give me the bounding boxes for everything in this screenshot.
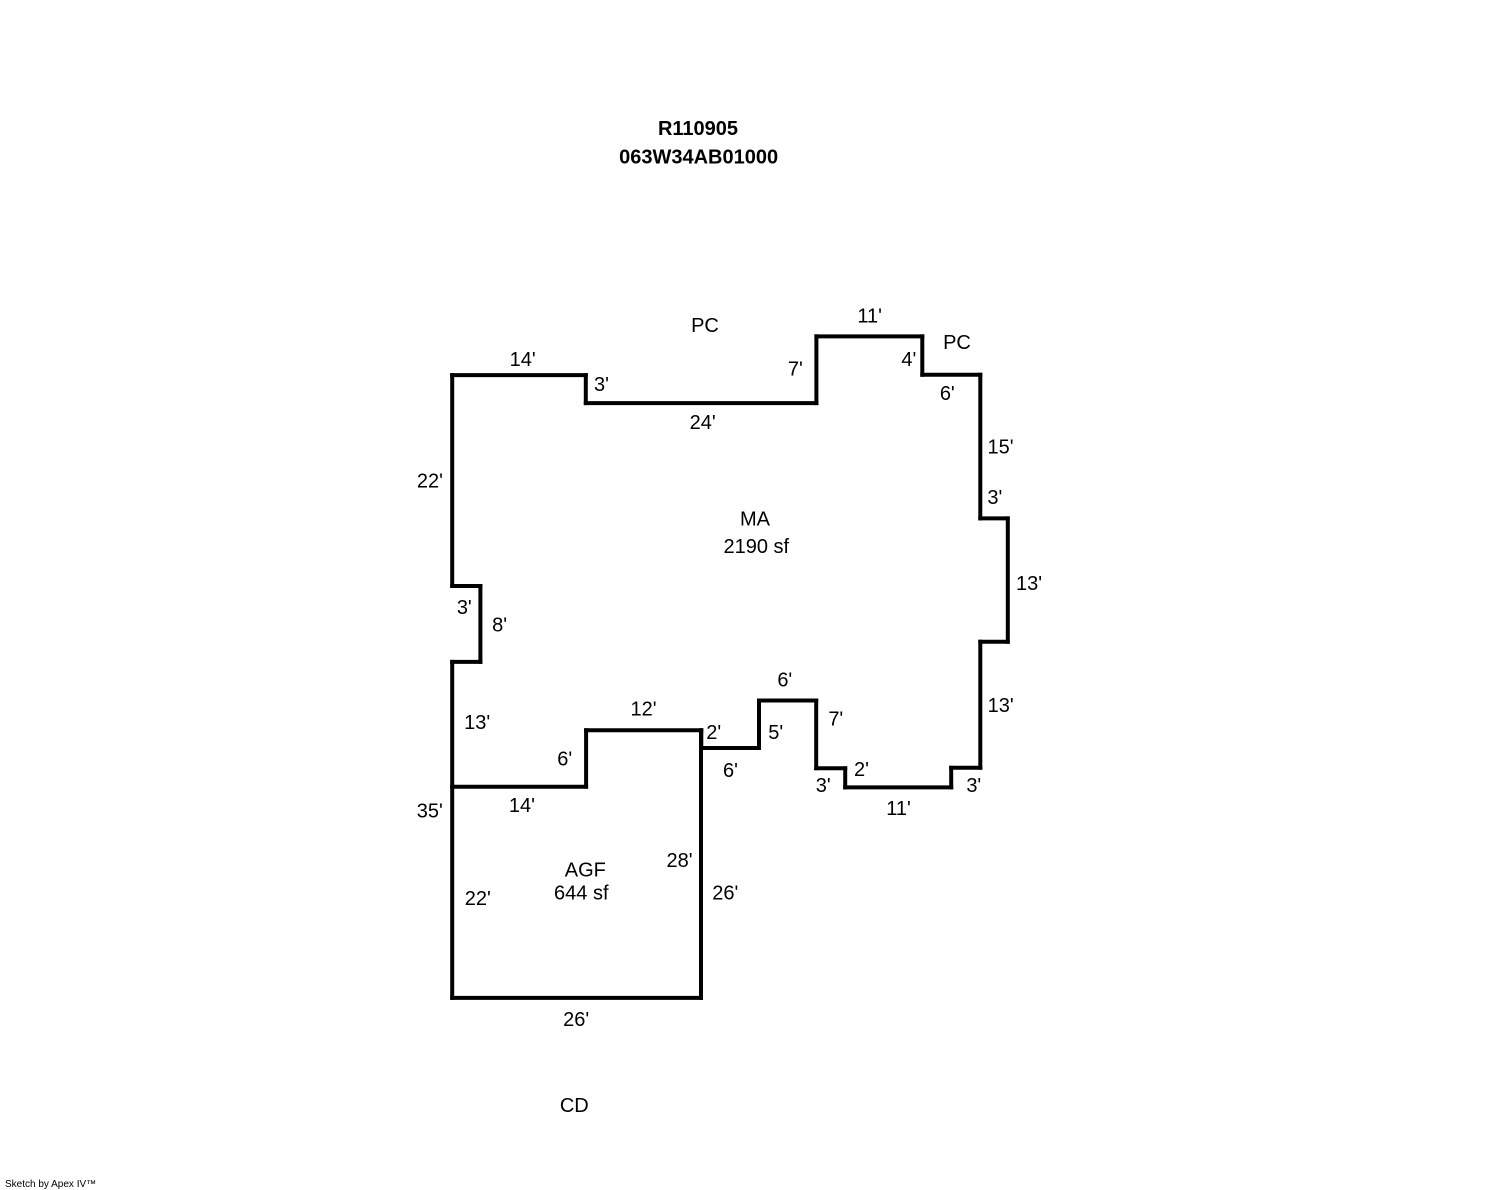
svg-text:7': 7' (788, 359, 803, 381)
svg-text:4': 4' (901, 349, 916, 371)
svg-text:PC: PC (691, 315, 719, 337)
svg-text:3': 3' (594, 374, 609, 396)
svg-text:12': 12' (630, 699, 656, 721)
svg-text:22': 22' (465, 888, 491, 910)
svg-text:28': 28' (667, 850, 693, 872)
svg-text:7': 7' (828, 709, 843, 731)
svg-text:5': 5' (768, 722, 783, 744)
svg-text:24': 24' (690, 412, 716, 434)
svg-text:644 sf: 644 sf (554, 883, 609, 905)
svg-text:6': 6' (940, 383, 955, 405)
svg-text:14': 14' (510, 349, 536, 371)
svg-text:3': 3' (966, 775, 981, 797)
svg-text:PC: PC (943, 332, 971, 354)
svg-text:2': 2' (706, 722, 721, 744)
svg-text:22': 22' (417, 470, 443, 492)
svg-text:2': 2' (854, 759, 869, 781)
svg-text:3': 3' (457, 597, 472, 619)
svg-text:6': 6' (777, 669, 792, 691)
svg-text:13': 13' (988, 695, 1014, 717)
svg-text:3': 3' (987, 487, 1002, 509)
svg-text:35': 35' (417, 800, 443, 822)
svg-text:3': 3' (816, 775, 831, 797)
svg-text:MA: MA (740, 509, 771, 531)
svg-text:26': 26' (712, 882, 738, 904)
svg-text:R110905: R110905 (658, 118, 738, 140)
svg-text:2190 sf: 2190 sf (723, 536, 789, 558)
svg-text:063W34AB01000: 063W34AB01000 (619, 147, 778, 169)
svg-text:8': 8' (492, 614, 507, 636)
svg-text:CD: CD (560, 1095, 589, 1117)
svg-text:6': 6' (723, 760, 738, 782)
svg-text:15': 15' (987, 437, 1013, 459)
svg-text:6': 6' (557, 748, 572, 770)
svg-text:11': 11' (886, 798, 911, 820)
svg-text:14': 14' (509, 795, 535, 817)
svg-text:13': 13' (464, 712, 490, 734)
svg-text:Sketch by Apex IV™: Sketch by Apex IV™ (5, 1179, 96, 1190)
svg-text:AGF: AGF (565, 859, 606, 881)
svg-text:26': 26' (563, 1009, 589, 1031)
svg-text:13': 13' (1016, 573, 1042, 595)
svg-text:11': 11' (857, 306, 882, 328)
